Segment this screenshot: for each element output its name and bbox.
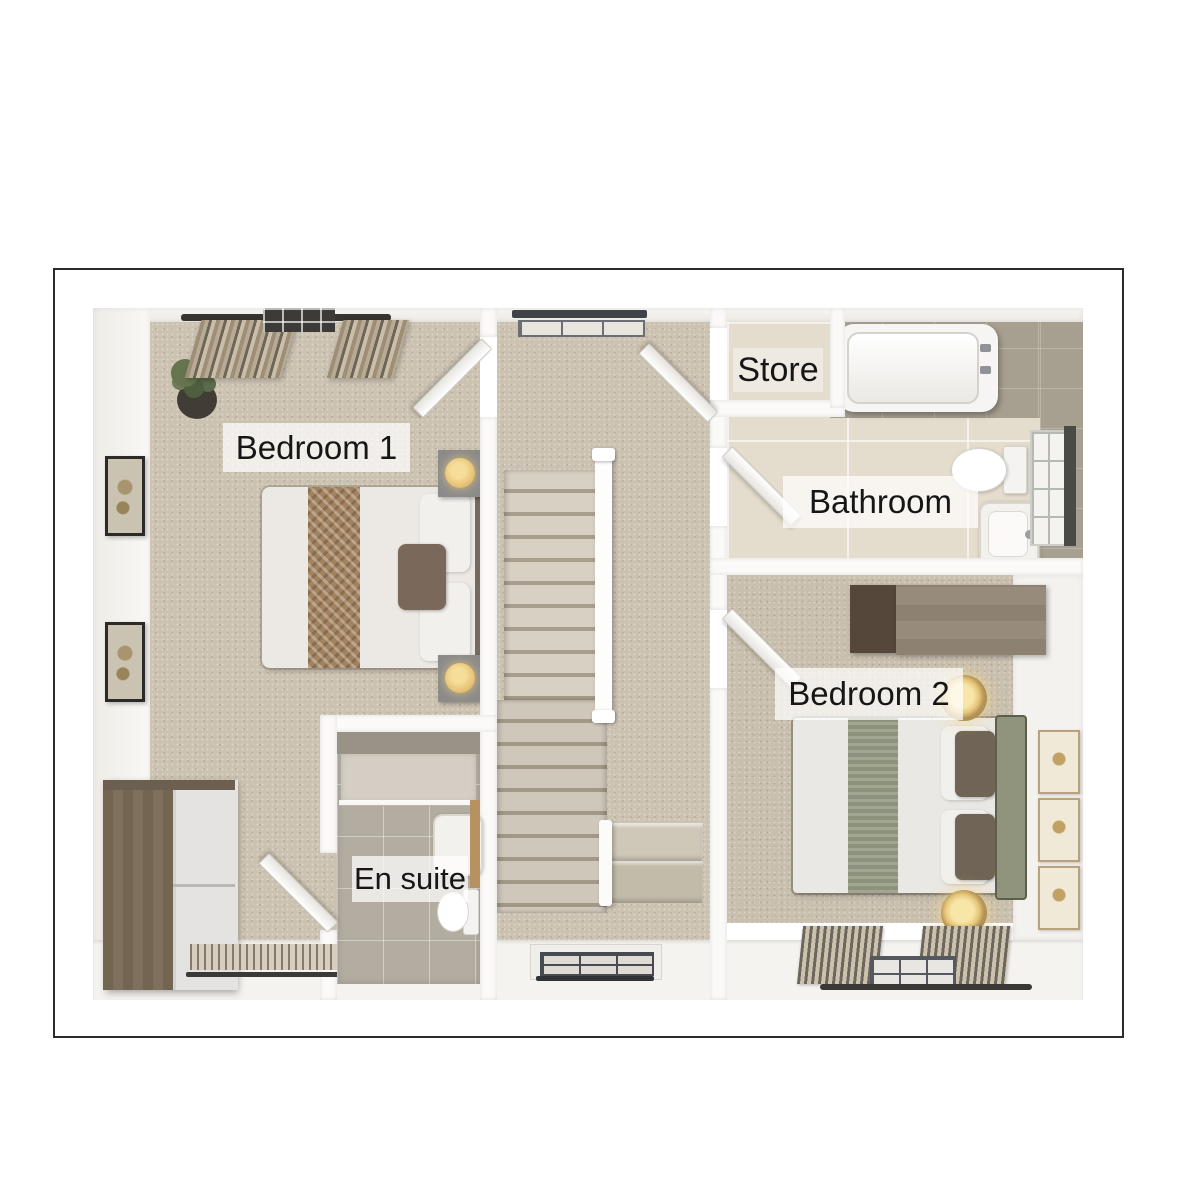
- bed2-cushion-bottom: [955, 814, 995, 880]
- wall-bedroom1-landing-upper: [480, 308, 497, 337]
- window-bottom-bar: [536, 976, 654, 981]
- bedroom2-wall-art-3: [1038, 866, 1080, 930]
- bedroom2-blind-rail: [820, 984, 1032, 990]
- staircase-winder-step-2: [603, 861, 703, 903]
- window-panes: [540, 952, 654, 976]
- floorplan-render: Bedroom 1 Store Bathroom Bedroom 2 En su…: [93, 308, 1083, 1000]
- room-label-bathroom: Bathroom: [783, 476, 978, 528]
- bedroom1-nightstand-bottom: [438, 655, 480, 702]
- bedroom1-nightstand-top: [438, 450, 480, 497]
- wall-store-bottom: [710, 400, 845, 417]
- landing-window-bottom: [530, 944, 660, 984]
- staircase-lower-flight: [497, 700, 607, 913]
- ensuite-shower-glass: [339, 800, 478, 806]
- bathtub-basin: [847, 332, 979, 404]
- bed2-runner: [848, 718, 898, 893]
- bedroom1-bed: [262, 487, 480, 668]
- floorplan-frame: Bedroom 1 Store Bathroom Bedroom 2 En su…: [53, 268, 1124, 1038]
- bathtub: [838, 324, 998, 412]
- staircase-handrail: [595, 452, 612, 720]
- nightstand-lamp: [445, 458, 475, 488]
- handrail-lower-post: [599, 820, 612, 906]
- bathroom-window-blind: [1064, 426, 1076, 546]
- ensuite-shower-tray: [341, 754, 476, 802]
- wall-landing-right-4: [710, 688, 727, 1000]
- window-head-bar: [512, 310, 647, 318]
- bed1-cushion: [398, 544, 446, 610]
- wall-bathroom-bedroom2: [710, 558, 1083, 575]
- wall-ensuite-left-upper: [320, 715, 337, 853]
- bathroom-window: [1030, 430, 1066, 546]
- wall-bedroom1-landing-lower: [480, 417, 497, 1000]
- window-panes: [518, 320, 645, 337]
- room-label-bedroom-1: Bedroom 1: [223, 423, 410, 472]
- bedroom2-bed: [793, 718, 1023, 893]
- bedroom1-window: [263, 308, 335, 332]
- bedroom1-wall-art-bottom: [105, 622, 145, 702]
- bedroom1-floor-vent: [190, 944, 345, 970]
- bedroom1-vent-rail: [186, 972, 349, 977]
- ensuite-shower-tile-wall: [337, 732, 480, 754]
- room-label-bedroom-2: Bedroom 2: [775, 668, 963, 720]
- room-label-en-suite: En suite: [352, 856, 468, 902]
- bed1-throw: [308, 487, 360, 668]
- bed2-headboard: [995, 715, 1027, 900]
- ensuite-wood-shelf: [470, 800, 480, 888]
- handrail-newel-top: [592, 448, 615, 461]
- bedroom1-wall-art-top: [105, 456, 145, 536]
- landing-window-top: [512, 308, 647, 335]
- wall-ensuite-top: [320, 715, 497, 732]
- bathtub-tap: [980, 344, 991, 352]
- bed2-cushion-top: [955, 731, 995, 797]
- staircase-upper-flight: [504, 470, 607, 700]
- dresser-top-edge: [103, 780, 235, 790]
- dresser-wood-side: [103, 780, 173, 990]
- bathtub-tap: [980, 366, 991, 374]
- sink-basin: [988, 511, 1028, 557]
- wall-landing-right-1: [710, 308, 727, 328]
- nightstand-lamp: [445, 663, 475, 693]
- dresser-drawer-divider: [173, 884, 235, 887]
- wall-store-right: [830, 308, 845, 408]
- bedroom2-wall-art-1: [1038, 730, 1080, 794]
- room-label-store: Store: [733, 348, 823, 392]
- bedroom2-wall-art-2: [1038, 798, 1080, 862]
- bedroom2-desk: [896, 585, 1046, 655]
- bedroom2-cabinet: [850, 585, 896, 653]
- staircase-winder-step-1: [603, 823, 703, 861]
- handrail-newel-bottom: [592, 710, 615, 723]
